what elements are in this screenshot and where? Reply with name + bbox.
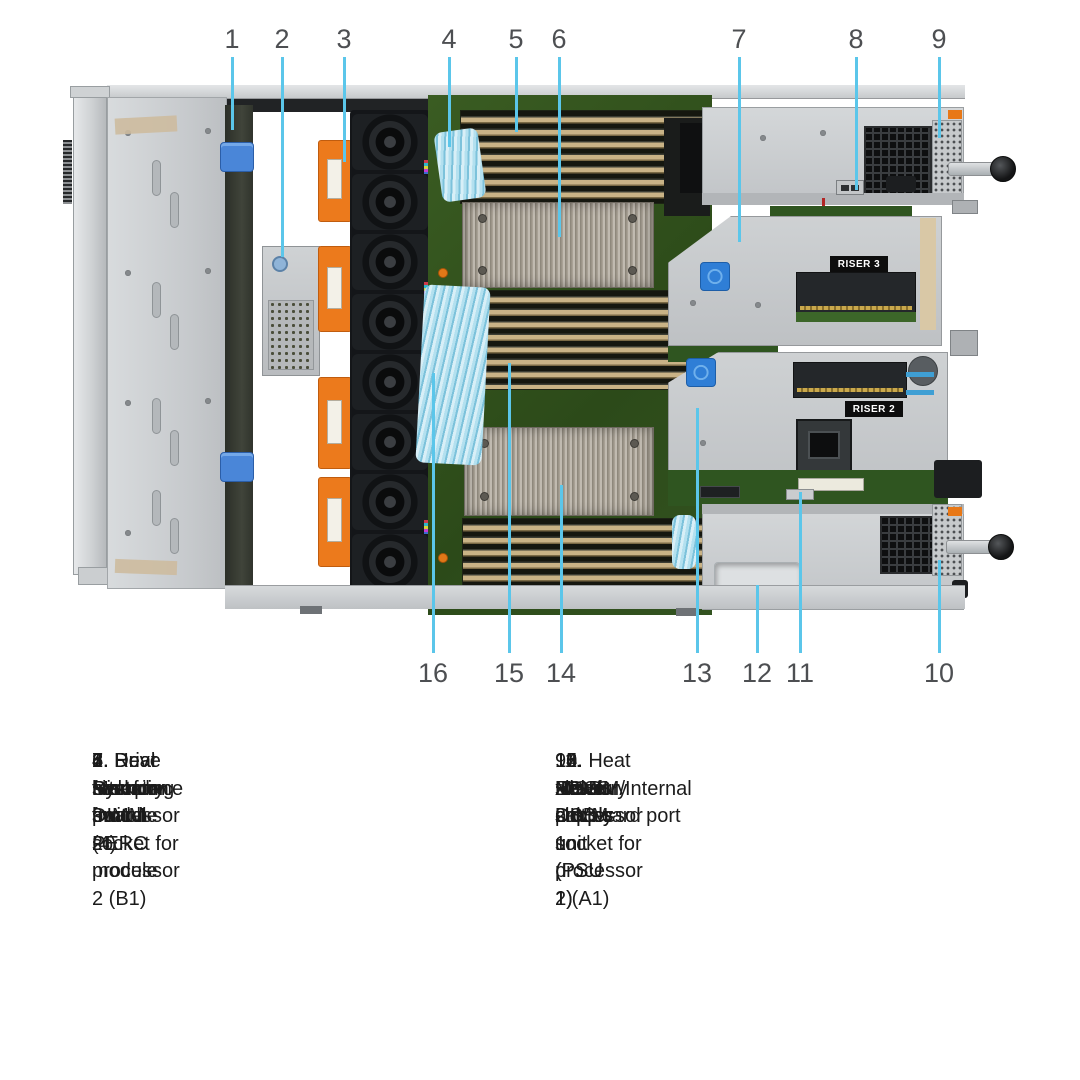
callout-line-2 [281, 57, 284, 257]
callout-number-13: 13 [682, 658, 712, 689]
callout-line-8 [855, 57, 858, 190]
callout-number-12: 12 [742, 658, 772, 689]
server-interior-diagram: RISER 3 RISER 2 [0, 0, 1080, 1080]
callout-line-4 [448, 57, 451, 147]
callout-number-9: 9 [931, 24, 946, 55]
callout-number-15: 15 [494, 658, 524, 689]
callout-number-5: 5 [508, 24, 523, 55]
callout-line-6 [558, 57, 561, 237]
callout-number-4: 4 [441, 24, 456, 55]
callout-line-7 [738, 57, 741, 242]
callout-line-15 [508, 363, 511, 653]
callout-number-16: 16 [418, 658, 448, 689]
callout-number-2: 2 [274, 24, 289, 55]
callout-line-11 [799, 492, 802, 653]
callout-line-14 [560, 485, 563, 653]
callout-line-10 [938, 560, 941, 653]
callout-line-13 [696, 408, 699, 653]
callout-number-1: 1 [224, 24, 239, 55]
callout-number-8: 8 [848, 24, 863, 55]
callout-line-1 [231, 57, 234, 130]
callout-number-7: 7 [731, 24, 746, 55]
legend-item-16: 16. xGMI cables [555, 748, 613, 831]
callout-line-16 [432, 373, 435, 653]
callout-number-10: 10 [924, 658, 954, 689]
callout-number-3: 3 [336, 24, 351, 55]
legend-item-8: 8. Intrusion switch [92, 748, 169, 831]
callout-layer: 12345678916151413121110 [0, 0, 1080, 1080]
callout-number-14: 14 [546, 658, 576, 689]
callout-number-11: 11 [786, 658, 814, 689]
callout-line-9 [938, 57, 941, 138]
callout-number-6: 6 [551, 24, 566, 55]
callout-line-5 [515, 57, 518, 132]
callout-line-12 [756, 585, 759, 653]
callout-line-3 [343, 57, 346, 162]
